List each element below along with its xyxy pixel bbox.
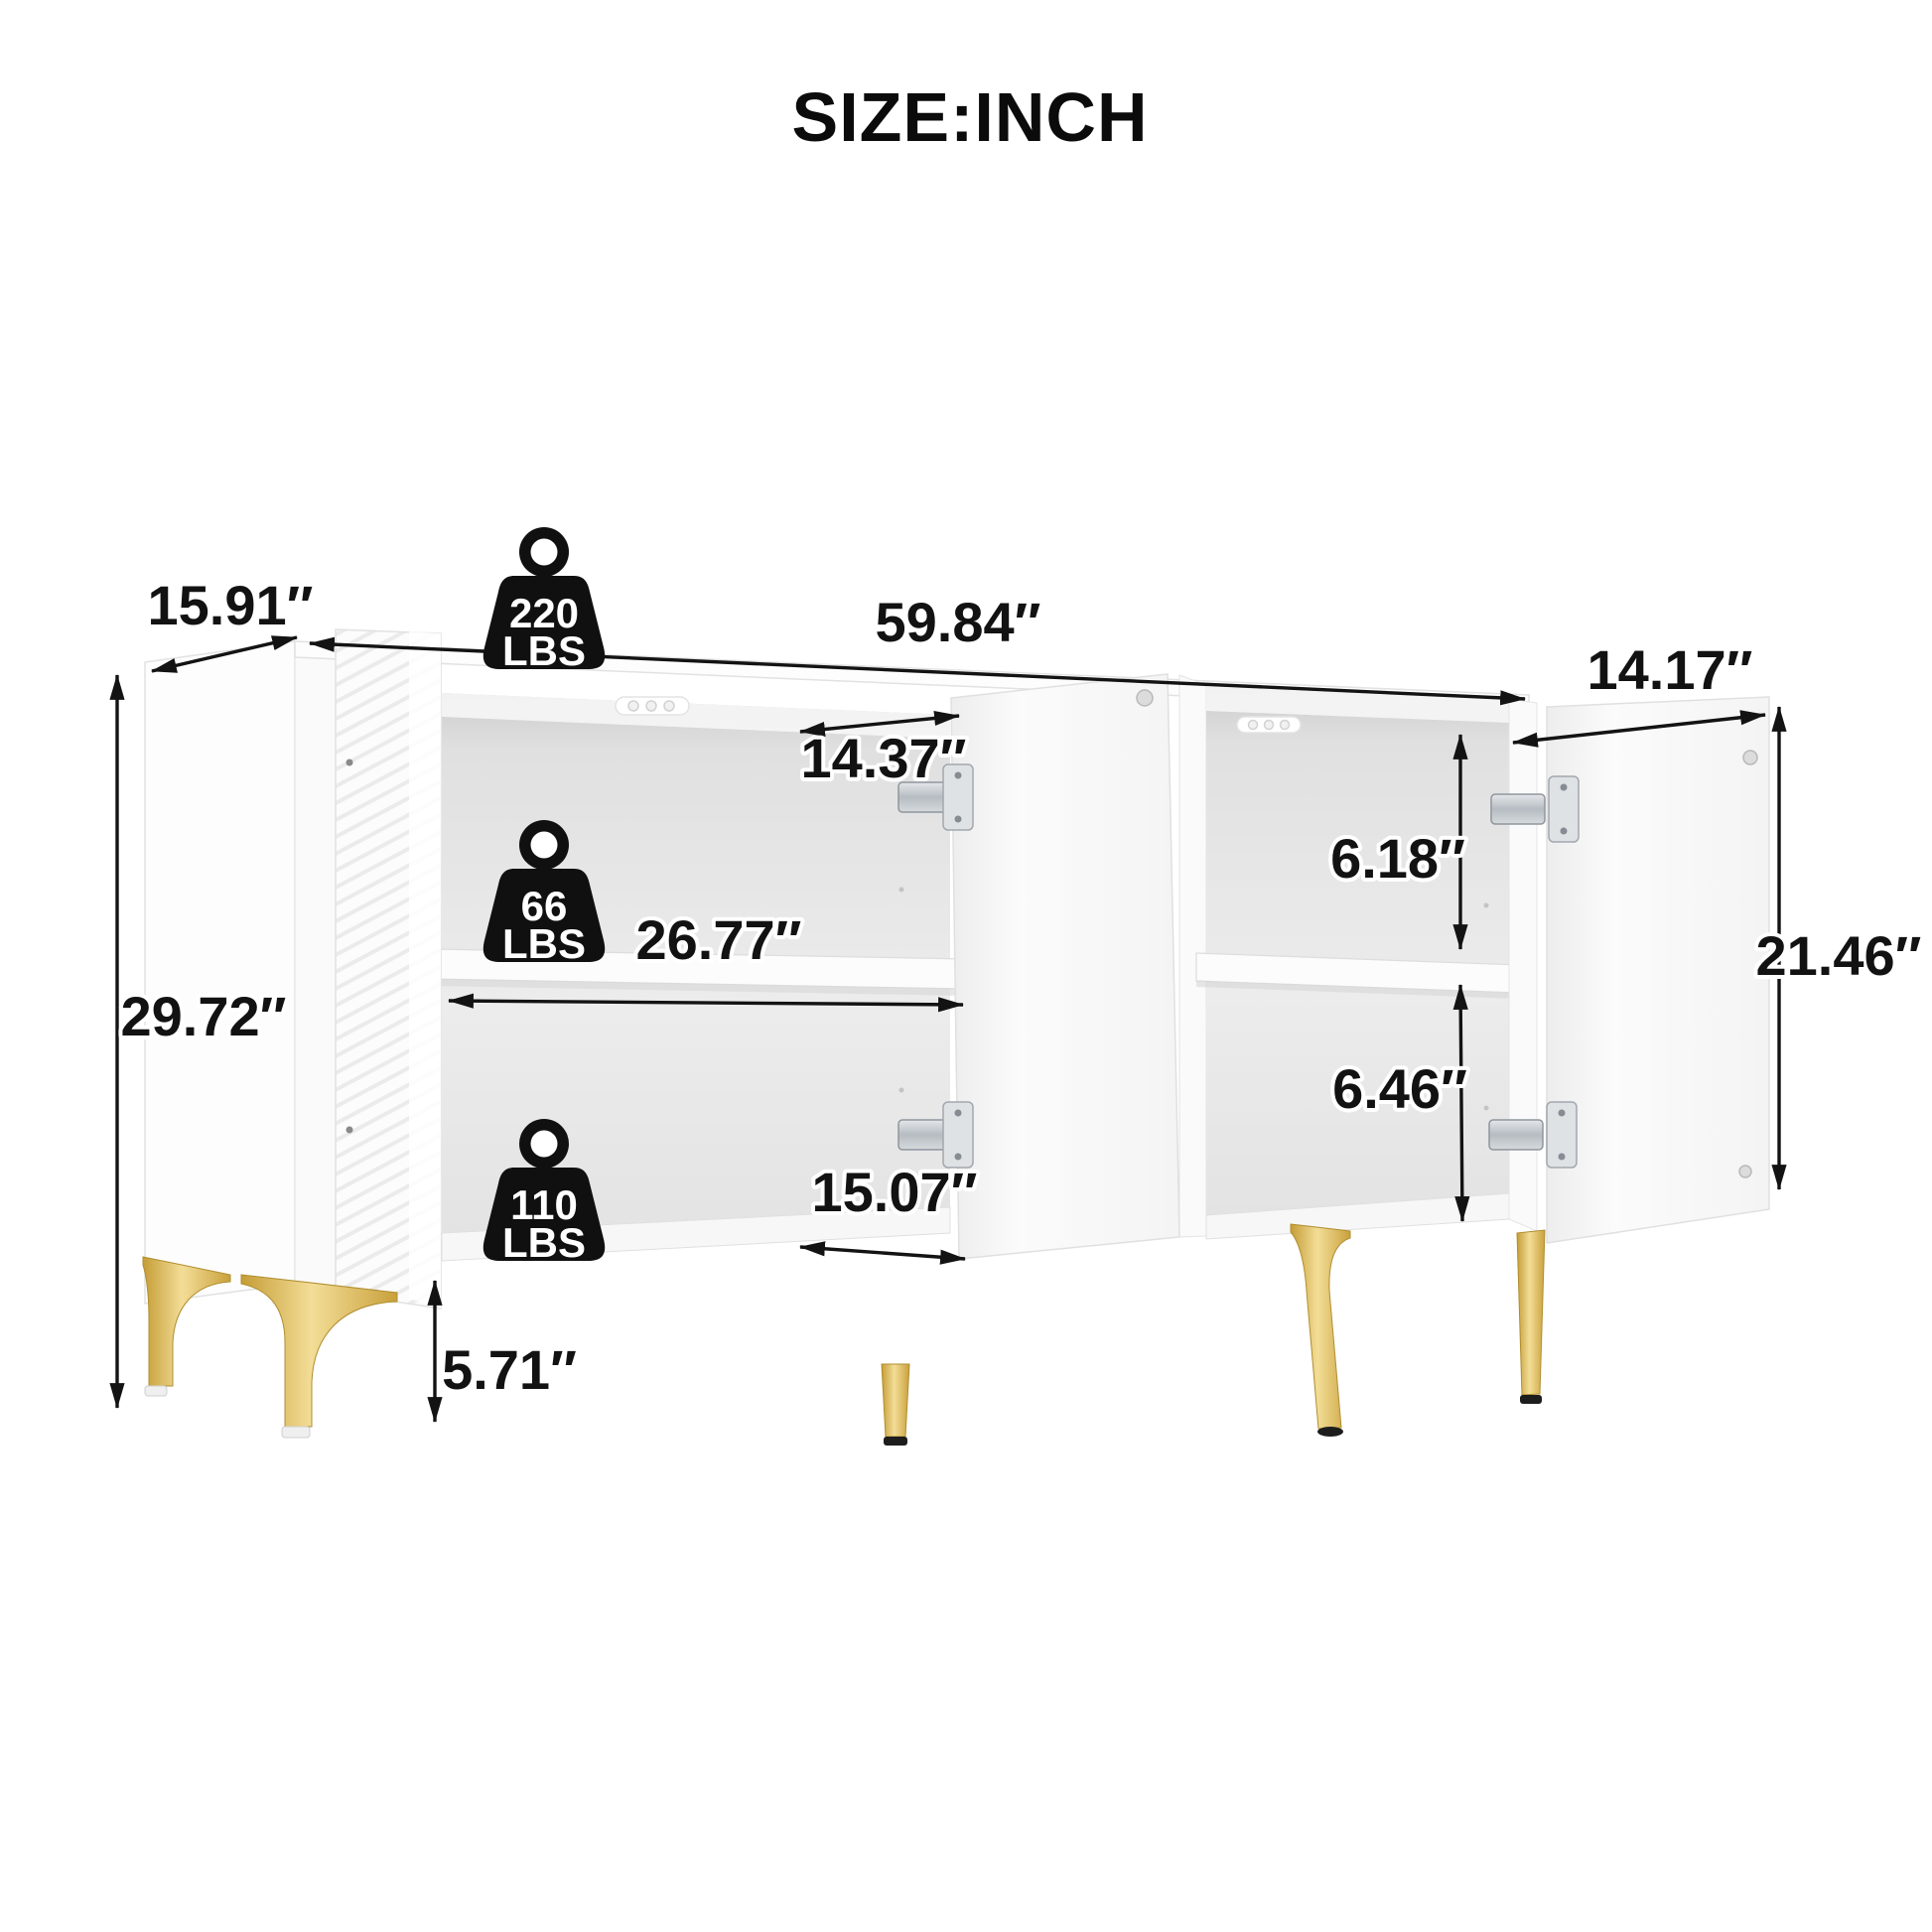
gold-leg-far-right bbox=[1517, 1230, 1545, 1395]
leg-foot bbox=[145, 1386, 167, 1396]
dim-label-lower-opening-width: 15.07″ bbox=[812, 1161, 978, 1223]
page-title: SIZE:INCH bbox=[792, 78, 1149, 156]
right-front-stile bbox=[1509, 699, 1537, 1231]
cam-screw bbox=[1739, 1166, 1751, 1177]
gold-leg-back-left bbox=[143, 1257, 230, 1386]
left-door-open bbox=[336, 629, 441, 1309]
gold-leg-middle bbox=[882, 1364, 909, 1437]
dim-label-width: 59.84″ bbox=[876, 591, 1041, 653]
dim-label-depth: 15.91″ bbox=[148, 574, 314, 636]
led-light bbox=[616, 697, 689, 715]
leg-foot bbox=[282, 1427, 310, 1438]
shelf-pin-hole bbox=[899, 1088, 904, 1093]
weight-unit: LBS bbox=[502, 1219, 586, 1266]
gold-leg-right-curved bbox=[1291, 1224, 1350, 1429]
led-light bbox=[1237, 717, 1301, 733]
shelf-pin-hole bbox=[1484, 903, 1489, 908]
weight-unit: LBS bbox=[502, 920, 586, 967]
dim-label-door-height: 21.46″ bbox=[1756, 924, 1922, 987]
leg-foot bbox=[1317, 1427, 1343, 1437]
leg-foot bbox=[1520, 1395, 1542, 1404]
dim-label-shelf-span: 26.77″ bbox=[636, 908, 802, 971]
cam-screw bbox=[1137, 690, 1153, 706]
weight-icon-220lbs: 220 LBS bbox=[483, 527, 605, 674]
size-diagram-page: SIZE:INCH bbox=[0, 0, 1932, 1932]
dim-label-left-opening-width: 14.37″ bbox=[801, 727, 967, 789]
left-side-panel bbox=[145, 641, 295, 1304]
gold-leg-front-left bbox=[241, 1275, 397, 1427]
weight-unit: LBS bbox=[502, 627, 586, 674]
hinge-pivot-dot bbox=[346, 759, 353, 766]
door-edge-highlight bbox=[409, 631, 441, 1309]
shelf-pin-hole bbox=[1484, 1106, 1489, 1111]
dim-label-right-lower-height: 6.46″ bbox=[1332, 1057, 1467, 1120]
hinge-pivot-dot bbox=[346, 1127, 353, 1134]
leg-foot bbox=[884, 1437, 907, 1446]
shelf-pin-hole bbox=[899, 888, 904, 893]
dim-label-right-upper-height: 6.18″ bbox=[1330, 827, 1465, 890]
dim-label-height: 29.72″ bbox=[121, 985, 287, 1047]
left-front-stile bbox=[295, 641, 339, 1287]
dim-label-leg-height: 5.71″ bbox=[442, 1338, 577, 1401]
dim-arrow-lower-opening-width bbox=[800, 1247, 965, 1259]
cam-screw bbox=[1743, 751, 1757, 764]
dim-label-right-door-width: 14.17″ bbox=[1587, 638, 1753, 701]
size-diagram: SIZE:INCH bbox=[0, 0, 1932, 1932]
